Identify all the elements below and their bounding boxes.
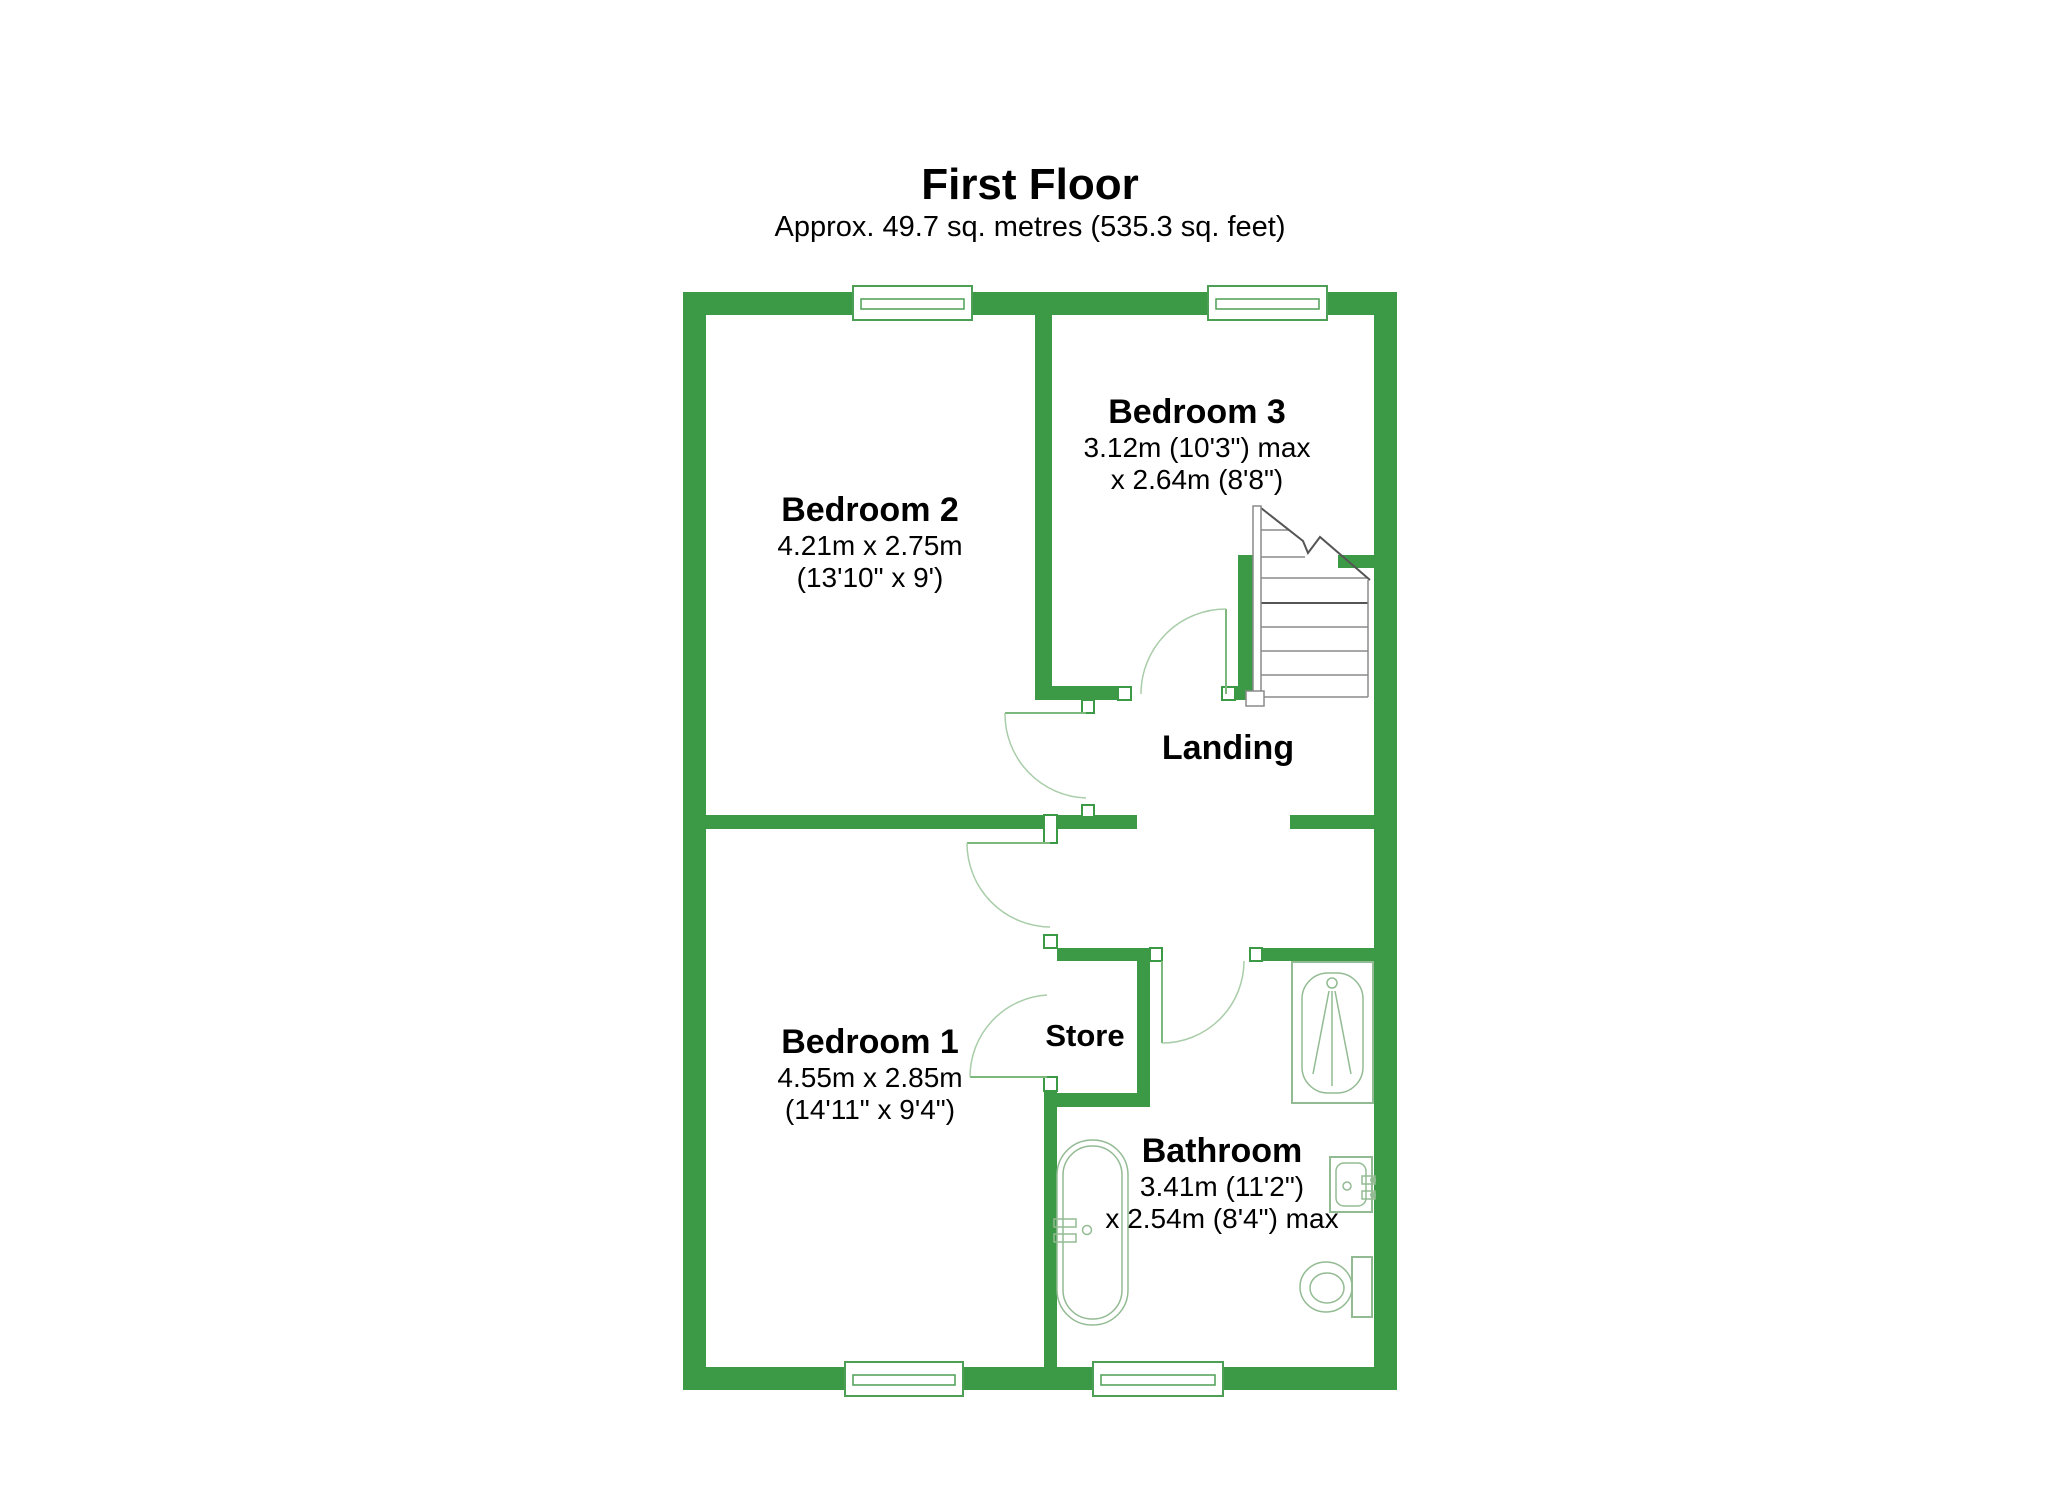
room-label-bedroom1: Bedroom 1 4.55m x 2.85m (14'11" x 9'4") <box>777 1022 962 1126</box>
wall-bed1-bathroom <box>1044 1090 1057 1367</box>
staircase <box>1246 506 1370 706</box>
stair-newel-post <box>1246 691 1264 706</box>
room-dim2-bedroom3: x 2.64m (8'8") <box>1084 464 1311 496</box>
room-label-store: Store <box>1045 1018 1124 1054</box>
room-dim2-bedroom1: (14'11" x 9'4") <box>777 1094 962 1126</box>
floorplan-page: First Floor Approx. 49.7 sq. metres (535… <box>0 0 2048 1489</box>
door-bedroom1 <box>967 843 1050 927</box>
wall-bottom <box>683 1367 1397 1390</box>
door-bedroom3 <box>1141 609 1226 694</box>
bed2-door-post-bottom <box>1082 805 1094 817</box>
room-label-bedroom3: Bedroom 3 3.12m (10'3") max x 2.64m (8'8… <box>1084 392 1311 496</box>
store-door-post-top <box>1044 935 1057 948</box>
floorplan-drawing <box>0 0 2048 1489</box>
toilet <box>1300 1257 1372 1317</box>
room-dim1-bathroom: 3.41m (11'2") <box>1105 1171 1338 1203</box>
wall-store-bottom <box>1044 1093 1150 1107</box>
room-name-bedroom1: Bedroom 1 <box>777 1022 962 1062</box>
window-bedroom3 <box>1208 286 1327 320</box>
room-name-bedroom3: Bedroom 3 <box>1084 392 1311 432</box>
bed1-door-hinge-post <box>1044 815 1057 843</box>
room-name-store: Store <box>1045 1018 1124 1054</box>
wall-landing-bathroom-corridor <box>1290 815 1374 829</box>
room-label-landing: Landing <box>1162 728 1294 768</box>
room-dim2-bedroom2: (13'10" x 9') <box>777 562 962 594</box>
wall-store-right <box>1137 948 1150 1107</box>
room-name-landing: Landing <box>1162 728 1294 768</box>
wall-bathroom-top <box>1262 948 1374 961</box>
stair-body <box>1253 568 1368 697</box>
wall-bed3-landing-left <box>1035 686 1118 700</box>
window-bedroom1 <box>845 1362 963 1396</box>
door-store <box>970 995 1047 1077</box>
wall-stairwell-left <box>1238 557 1253 700</box>
wall-bed2-bed1-right <box>1057 815 1137 829</box>
bathroom-door-post-right <box>1250 948 1262 961</box>
room-dim1-bedroom3: 3.12m (10'3") max <box>1084 432 1311 464</box>
door-bedroom2 <box>1005 713 1086 798</box>
room-dim1-bedroom1: 4.55m x 2.85m <box>777 1062 962 1094</box>
room-dim2-bathroom: x 2.54m (8'4") max <box>1105 1203 1338 1235</box>
doors <box>967 609 1244 1077</box>
wall-store-top <box>1057 948 1150 961</box>
stair-railing <box>1253 506 1261 697</box>
bathroom-door-post-left <box>1150 948 1162 961</box>
wall-right <box>1374 292 1397 1390</box>
wall-bed2-bed1-left <box>706 815 1044 829</box>
wall-bed2-bed3 <box>1035 315 1052 700</box>
bathtub-built-in <box>1292 962 1373 1103</box>
room-label-bathroom: Bathroom 3.41m (11'2") x 2.54m (8'4") ma… <box>1105 1131 1338 1235</box>
room-dim1-bedroom2: 4.21m x 2.75m <box>777 530 962 562</box>
window-bathroom <box>1093 1362 1223 1396</box>
wall-left <box>683 292 706 1390</box>
door-bathroom <box>1162 961 1244 1043</box>
bed2-door-post-top <box>1082 700 1094 713</box>
window-bedroom2 <box>853 286 972 320</box>
store-door-post-bottom <box>1044 1077 1057 1091</box>
bed3-door-post-right <box>1222 687 1235 700</box>
room-name-bedroom2: Bedroom 2 <box>777 490 962 530</box>
room-name-bathroom: Bathroom <box>1105 1131 1338 1171</box>
bed3-door-post-left <box>1118 687 1131 700</box>
room-label-bedroom2: Bedroom 2 4.21m x 2.75m (13'10" x 9') <box>777 490 962 594</box>
